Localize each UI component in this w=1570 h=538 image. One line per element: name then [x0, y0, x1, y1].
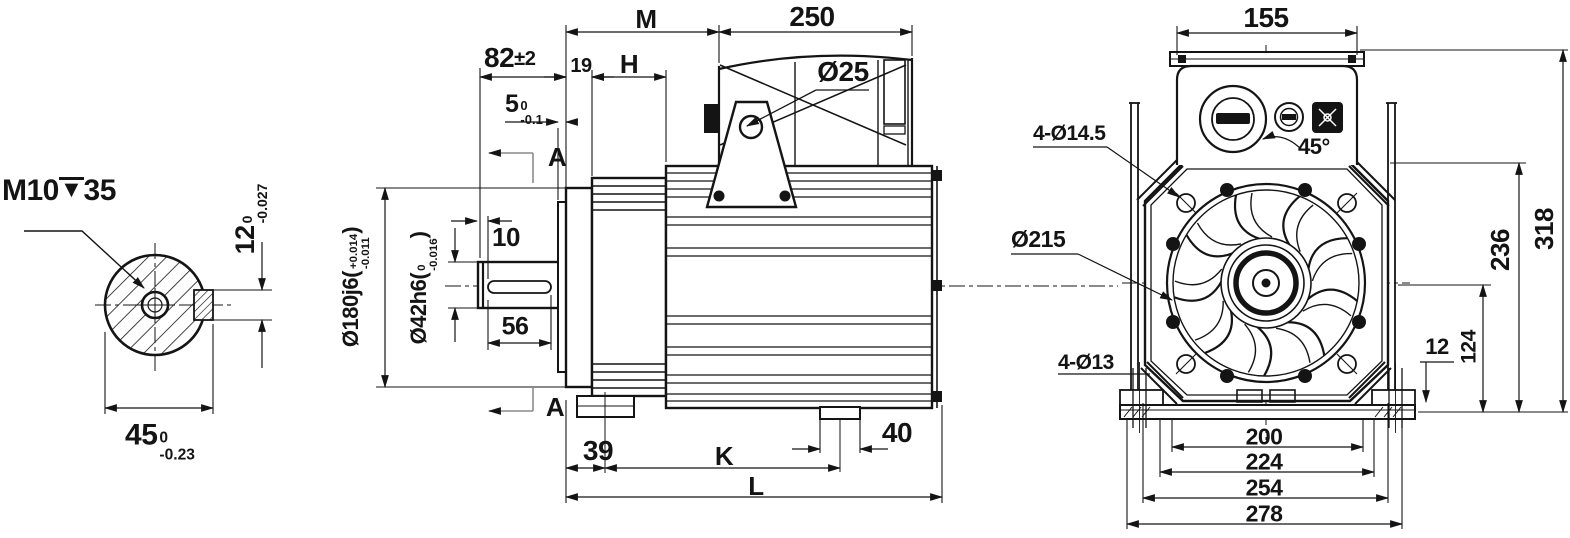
dim-terminal-box-length: 250	[789, 3, 834, 31]
dim-shaft-length: 82±2	[484, 44, 535, 72]
dim-bolt-span-1: 200	[1246, 426, 1283, 449]
paren-close: )	[406, 232, 431, 239]
dim-k: K	[715, 443, 733, 469]
dim-value: Ø42h6(	[406, 273, 431, 345]
tol-upper: 0	[159, 431, 195, 447]
dim-overall-height: 318	[1531, 208, 1557, 250]
drawing-linework	[0, 0, 1570, 538]
tol-upper: 0	[416, 238, 428, 270]
tol-lower: -0.027	[255, 184, 270, 224]
dim-bolt-span-2: 224	[1246, 451, 1283, 474]
tolerance-stack: 0-0.027	[240, 184, 269, 224]
dim-m: M	[635, 6, 656, 32]
motor-dimension-drawing: M10▼35 120-0.027 450-0.23 82±2 50-0.1 19…	[0, 0, 1570, 538]
dim-foot-width: 40	[882, 419, 912, 447]
tol-symmetric: ±2	[514, 48, 535, 70]
dim-value: 5	[505, 90, 518, 118]
tol-upper: 0	[520, 99, 542, 113]
paren-close: )	[338, 227, 363, 234]
dim-bolt-angle: 45°	[1298, 136, 1330, 158]
callout-shroud-dia: Ø215	[1011, 228, 1065, 251]
dim-key-height: 120-0.027	[232, 184, 270, 255]
dim-shaft-dia: Ø42h6(0-0.016)	[408, 232, 440, 345]
callout-flange-holes: 4-Ø14.5	[1033, 123, 1105, 144]
tol-lower: -0.1	[520, 113, 542, 127]
dim-value: 82	[484, 42, 514, 73]
dim-body-top-height: 236	[1487, 229, 1513, 271]
dim-h: H	[620, 51, 638, 77]
dim-base-width: 278	[1246, 503, 1283, 526]
tol-upper: +0.014	[348, 234, 360, 269]
tolerance-stack: 0-0.1	[520, 99, 542, 126]
section-label-bottom: A	[546, 394, 564, 420]
dim-value: Ø180j6(	[338, 271, 363, 347]
dim-foot-offset: 39	[583, 437, 613, 465]
tolerance-stack: +0.014-0.011	[348, 234, 372, 269]
dim-width-over-key: 450-0.23	[125, 421, 195, 464]
dim-bolt-span-3: 254	[1246, 477, 1283, 500]
tolerance-stack: 0-0.23	[159, 431, 195, 464]
dim-spigot-depth: 50-0.1	[505, 92, 543, 127]
dim-center-height: 124	[1459, 330, 1480, 364]
tol-upper: 0	[240, 184, 255, 224]
dim-flange-dia: Ø180j6(+0.014-0.011)	[340, 227, 372, 347]
dim-value: 45	[125, 419, 157, 452]
dim-terminal-box-width: 155	[1243, 4, 1288, 32]
dim-flange-thickness: 19	[570, 56, 591, 76]
shaft-end-view-linework	[24, 231, 272, 414]
depth-symbol-icon: ▼	[59, 177, 84, 199]
tol-lower: -0.016	[428, 238, 440, 270]
tol-lower: -0.23	[159, 447, 195, 463]
thread-depth: 35	[84, 174, 116, 207]
tolerance-stack: 0-0.016	[416, 238, 440, 270]
dim-eye-hole-dia: Ø25	[817, 58, 868, 86]
thread-size: M10	[2, 174, 59, 207]
front-view-linework	[1011, 26, 1568, 529]
dim-keyway-offset: 10	[492, 224, 520, 250]
tol-lower: -0.011	[360, 234, 372, 269]
callout-foot-holes: 4-Ø13	[1058, 352, 1114, 373]
dim-keyway-length: 56	[502, 315, 529, 340]
dim-base-thickness: 12	[1425, 336, 1448, 358]
side-view-linework	[376, 25, 1118, 503]
section-label-top: A	[548, 144, 566, 170]
dim-l: L	[748, 473, 763, 499]
dim-value: 12	[230, 225, 260, 254]
thread-depth-callout: M10▼35	[2, 176, 116, 206]
